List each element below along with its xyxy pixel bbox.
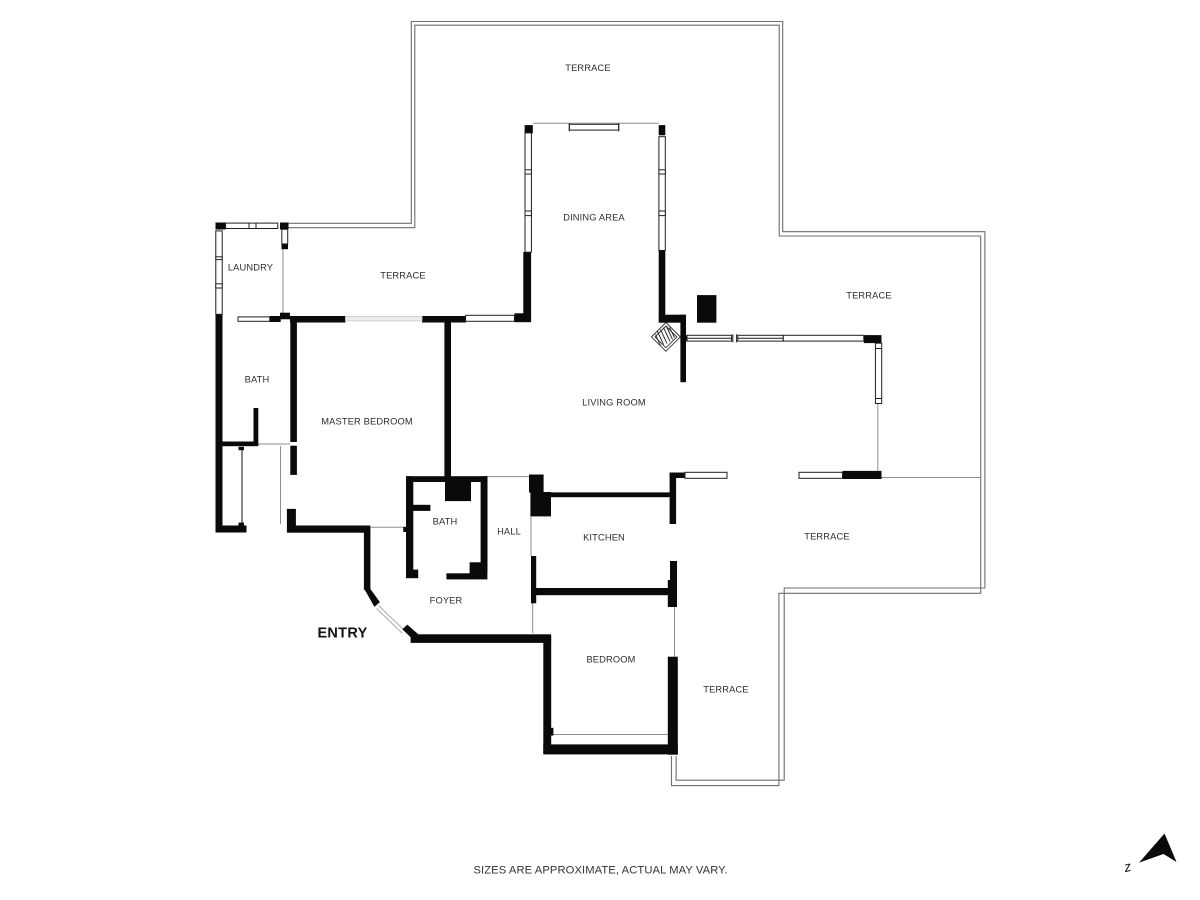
svg-text:LAUNDRY: LAUNDRY: [228, 263, 273, 273]
svg-text:TERRACE: TERRACE: [565, 63, 610, 73]
svg-text:BATH: BATH: [245, 375, 270, 385]
svg-text:TERRACE: TERRACE: [846, 291, 891, 301]
svg-text:FOYER: FOYER: [430, 596, 463, 606]
svg-text:BEDROOM: BEDROOM: [586, 655, 635, 665]
svg-text:DINING AREA: DINING AREA: [563, 213, 625, 223]
svg-text:MASTER BEDROOM: MASTER BEDROOM: [321, 417, 412, 427]
svg-text:BATH: BATH: [433, 517, 458, 527]
svg-text:TERRACE: TERRACE: [804, 532, 849, 542]
svg-text:TERRACE: TERRACE: [380, 271, 425, 281]
svg-text:ENTRY: ENTRY: [317, 626, 367, 642]
svg-text:LIVING ROOM: LIVING ROOM: [582, 398, 646, 408]
svg-text:KITCHEN: KITCHEN: [583, 533, 625, 543]
svg-text:SIZES ARE APPROXIMATE, ACTUAL: SIZES ARE APPROXIMATE, ACTUAL MAY VARY.: [473, 865, 727, 877]
svg-text:TERRACE: TERRACE: [703, 685, 748, 695]
svg-text:HALL: HALL: [497, 527, 521, 537]
